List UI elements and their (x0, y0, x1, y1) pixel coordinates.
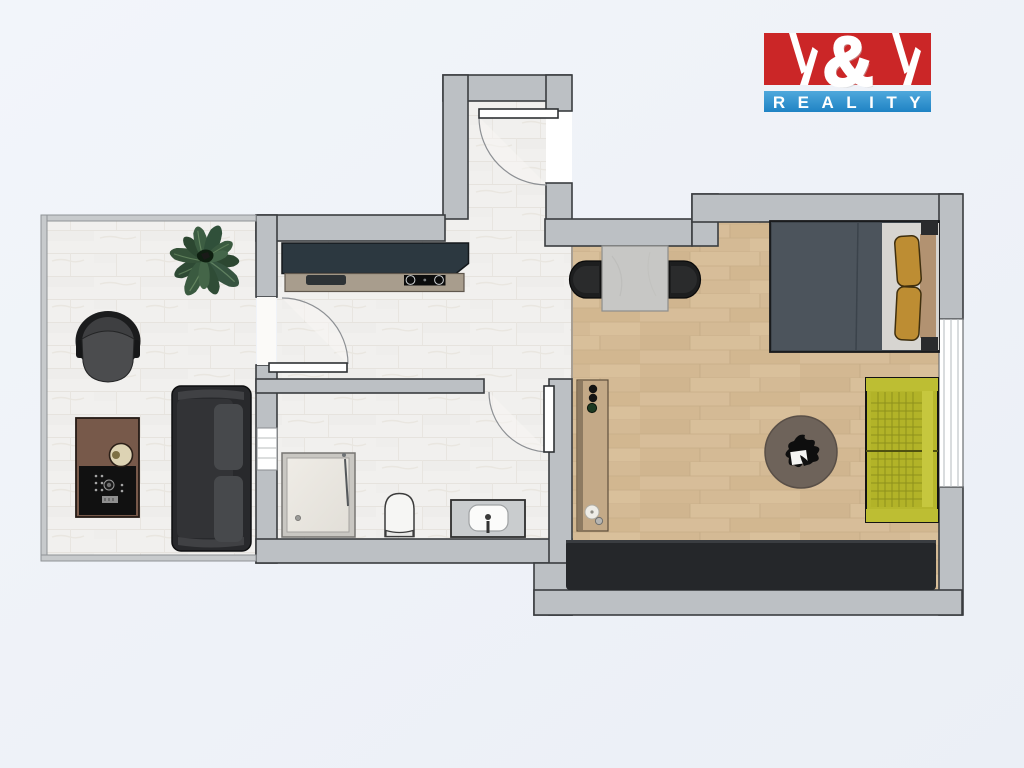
svg-text:REALITY: REALITY (773, 93, 933, 112)
svg-text:&: & (823, 23, 874, 101)
